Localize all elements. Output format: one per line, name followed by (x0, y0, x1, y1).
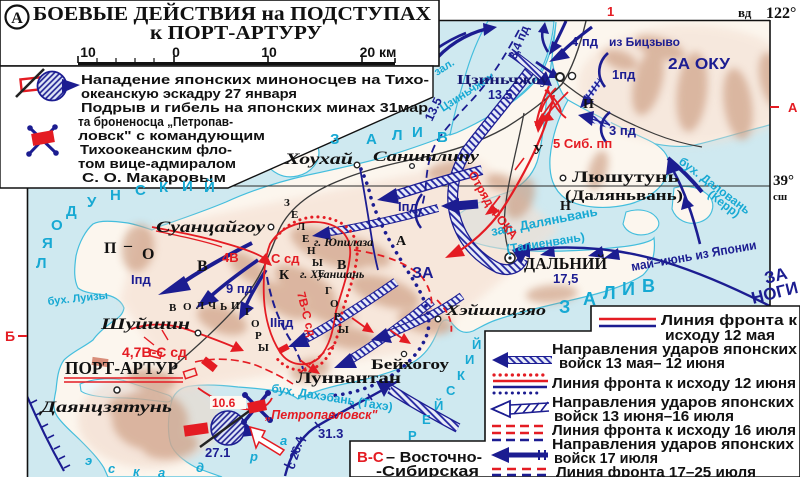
svg-text:Л: Л (392, 127, 403, 144)
svg-text:вд: вд (738, 5, 752, 20)
svg-text:Нападение японских миноносце: Нападение японских миноносцев на Тихо- (81, 72, 429, 87)
svg-text:1: 1 (607, 4, 614, 19)
svg-text:Ы: Ы (338, 324, 349, 336)
svg-text:войск 13 мая– 12 июня: войск 13 мая– 12 июня (559, 355, 725, 372)
svg-text:р: р (249, 449, 258, 464)
svg-text:А: А (396, 234, 407, 249)
svg-text:Л: Л (36, 255, 47, 272)
svg-text:10: 10 (261, 44, 277, 60)
svg-text:Р: Р (255, 330, 262, 342)
svg-text:39°: 39° (773, 173, 794, 189)
svg-text:А: А (788, 100, 798, 115)
svg-text:Хэйшицзяо: Хэйшицзяо (445, 303, 546, 319)
svg-text:сш: сш (773, 191, 787, 203)
svg-text:Тихоокеанским фло-: Тихоокеанским фло- (80, 142, 232, 157)
svg-text:В: В (642, 276, 655, 296)
svg-text:И: И (622, 279, 635, 299)
svg-text:г. Юпилаза: г. Юпилаза (314, 235, 373, 249)
svg-text:20 км: 20 км (360, 44, 397, 60)
svg-text:Ы: Ы (258, 342, 269, 354)
svg-text:а: а (158, 465, 165, 477)
svg-text:э: э (85, 453, 92, 468)
svg-text:О: О (251, 318, 260, 330)
svg-text:И: И (231, 300, 240, 312)
svg-text:13.5: 13.5 (488, 88, 512, 102)
svg-text:Г: Г (245, 306, 252, 318)
svg-text:В: В (437, 129, 448, 146)
svg-text:Й: Й (434, 398, 443, 413)
svg-text:Й: Й (204, 178, 215, 196)
svg-text:Я: Я (42, 235, 53, 252)
svg-text:С сд: С сд (271, 251, 300, 266)
svg-text:А: А (11, 10, 23, 27)
svg-text:Е: Е (291, 209, 298, 221)
svg-text:Линия фронта к исходу 12 июня: Линия фронта к исходу 12 июня (552, 375, 796, 392)
svg-text:1пд: 1пд (612, 67, 636, 82)
svg-text:Л: Л (196, 300, 205, 312)
svg-text:„Петропавловск": „Петропавловск" (264, 408, 378, 422)
svg-text:Г: Г (325, 285, 332, 297)
svg-text:К: К (457, 368, 465, 383)
svg-text:10.6: 10.6 (212, 396, 236, 410)
svg-text:ловск" с командующим: ловск" с командующим (78, 128, 265, 143)
svg-text:Н: Н (560, 199, 571, 214)
svg-text:Б: Б (5, 328, 15, 344)
svg-text:Д: Д (66, 203, 77, 220)
svg-text:Линия фронта 17–25 июля: Линия фронта 17–25 июля (556, 464, 756, 477)
svg-text:с: с (108, 461, 116, 476)
svg-text:ЗА: ЗА (412, 265, 434, 282)
svg-text:Р: Р (334, 311, 341, 323)
svg-text:К: К (159, 179, 169, 196)
svg-text:В: В (169, 302, 177, 314)
svg-text:В: В (197, 258, 208, 275)
svg-text:Хоухай: Хоухай (284, 151, 354, 168)
svg-text:О: О (51, 217, 63, 234)
svg-text:С: С (135, 182, 146, 199)
svg-text:Лунвантан: Лунвантан (296, 370, 401, 387)
svg-text:И: И (465, 352, 474, 367)
svg-text:9 пд: 9 пд (226, 281, 254, 296)
svg-text:–: – (123, 237, 133, 254)
svg-text:2А ОКУ: 2А ОКУ (668, 56, 731, 73)
svg-text:Й: Й (472, 337, 481, 352)
svg-text:И: И (412, 124, 423, 141)
svg-text:Е: Е (302, 233, 309, 245)
svg-text:3 пд: 3 пд (609, 123, 637, 138)
svg-text:том вице-адмиралом: том вице-адмиралом (78, 156, 236, 171)
svg-text:а: а (280, 433, 287, 448)
svg-text:П: П (104, 240, 117, 257)
svg-text:к ПОРТ-АРТУРУ: к ПОРТ-АРТУРУ (150, 22, 322, 44)
svg-text:З: З (330, 131, 339, 148)
svg-text:Ь: Ь (220, 301, 227, 313)
svg-text:4,7В-С сд: 4,7В-С сд (122, 344, 187, 360)
svg-text:О: О (142, 246, 154, 263)
svg-text:из Бицзыво: из Бицзыво (609, 35, 680, 49)
svg-text:17,5: 17,5 (553, 271, 578, 286)
svg-text:К: К (279, 268, 290, 283)
svg-text:Шуйшин: Шуйшин (100, 316, 191, 333)
svg-text:Подрыв и гибель на японски: Подрыв и гибель на японских минах 31мар (81, 100, 428, 115)
svg-text:31.3: 31.3 (318, 426, 343, 441)
svg-text:5 Сиб. пп: 5 Сиб. пп (553, 136, 612, 151)
svg-text:4 пд: 4 пд (571, 34, 599, 49)
svg-text:122°: 122° (766, 5, 796, 22)
svg-text:Л: Л (297, 221, 306, 233)
svg-text:Е: Е (318, 268, 325, 280)
svg-text:27.1: 27.1 (205, 445, 230, 460)
svg-text:Люшутунь: Люшутунь (572, 169, 680, 186)
svg-text:та броненосца „Петропав-: та броненосца „Петропав- (78, 114, 233, 129)
svg-text:Н: Н (110, 187, 121, 204)
svg-text:О: О (183, 301, 192, 313)
svg-text:Iпд: Iпд (398, 199, 418, 214)
svg-text:Iпд: Iпд (131, 272, 151, 287)
svg-text:океанскую эскадру 27 января: океанскую эскадру 27 января (81, 86, 297, 101)
svg-text:И: И (182, 178, 193, 195)
svg-text:О: О (330, 298, 339, 310)
svg-text:З: З (559, 297, 570, 317)
svg-text:4В: 4В (222, 250, 239, 265)
svg-text:Н: Н (307, 245, 316, 257)
svg-text:З: З (284, 197, 290, 209)
svg-text:-Сибирская: -Сибирская (376, 463, 479, 477)
svg-text:Даянцзятунь: Даянцзятунь (38, 399, 172, 416)
svg-text:ПОРТ-АРТУР: ПОРТ-АРТУР (65, 358, 178, 378)
svg-text:г. Хуаншань: г. Хуаншань (300, 267, 365, 281)
svg-text:Саншилипу: Саншилипу (373, 149, 479, 165)
svg-text:IIпд: IIпд (270, 315, 294, 330)
svg-text:Е: Е (422, 412, 431, 427)
svg-text:10: 10 (80, 44, 96, 60)
svg-text:С: С (446, 383, 456, 398)
svg-text:У: У (533, 143, 543, 158)
svg-text:Л: Л (603, 283, 616, 303)
svg-text:У: У (87, 194, 97, 211)
svg-text:д: д (196, 460, 204, 475)
svg-text:А: А (366, 131, 377, 148)
svg-text:Н: Н (583, 97, 594, 112)
svg-text:Суанцайгоу: Суанцайгоу (156, 219, 266, 236)
svg-text:Цзиньчжоу: Цзиньчжоу (457, 73, 549, 88)
svg-text:(Даляньвань): (Даляньвань) (565, 188, 683, 204)
svg-text:Ч: Ч (208, 300, 216, 312)
